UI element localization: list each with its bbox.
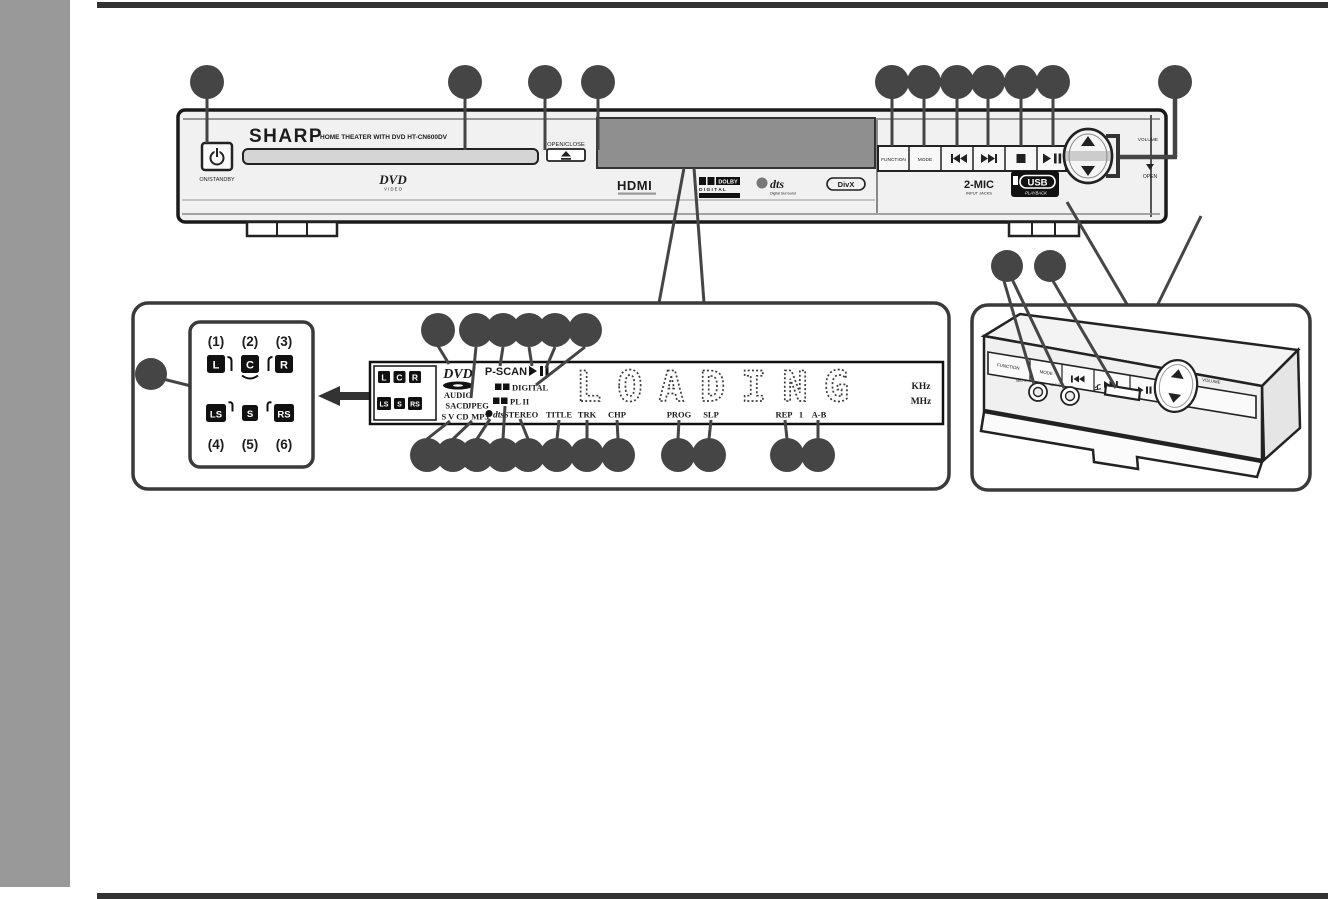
svg-text:S: S (397, 402, 402, 409)
open-close-label: OPEN/CLOSE (547, 142, 585, 148)
callout-dot (448, 65, 482, 99)
disc-tray (243, 149, 538, 164)
svg-text:dts: dts (770, 177, 784, 191)
svg-text:RS: RS (410, 402, 420, 409)
callout-dot (801, 438, 835, 472)
svg-text:DivX: DivX (838, 180, 855, 189)
transport-button-strip: FUNCTION MODE (878, 146, 1066, 171)
jpeg-indicator: JPEG (467, 401, 489, 411)
callout-dot (661, 438, 695, 472)
svg-text:Digital Surround: Digital Surround (770, 192, 796, 196)
svg-text:PLAYBACK: PLAYBACK (1025, 191, 1047, 196)
callout-dot (538, 313, 572, 347)
mic2-label: MIC 2 (1050, 383, 1060, 387)
callout-dot (528, 65, 562, 99)
dolby-double-d-icon (493, 398, 500, 405)
volume-label: VOLUME (1138, 137, 1158, 143)
mic1-jack (1029, 383, 1047, 401)
title-indicator: TITLE (546, 410, 572, 420)
stereo-indicator: STEREO (504, 410, 539, 420)
hdmi-logo: HDMI (617, 178, 656, 195)
page-bottom-rule (97, 893, 1328, 899)
callout-dot (601, 438, 635, 472)
channel-number: (6) (276, 437, 293, 452)
callout-dot (581, 65, 615, 99)
callout-dot (770, 438, 804, 472)
svg-text:DVD: DVD (378, 172, 407, 187)
callout-dot (570, 438, 604, 472)
divx-logo: DivX (827, 178, 865, 190)
khz-indicator: KHz (912, 382, 932, 392)
mic1-label: MIC 1 (1016, 379, 1026, 383)
chp-indicator: CHP (608, 410, 626, 420)
pscan-indicator: P-SCAN (485, 366, 527, 378)
function-button: FUNCTION (881, 157, 906, 163)
ab-repeat-indicator: A-B (812, 410, 827, 420)
callout-dot (135, 358, 167, 390)
callout-dot (190, 65, 224, 99)
volume-control (1064, 129, 1112, 183)
svg-text:PL II: PL II (510, 397, 530, 407)
callout-dot (1034, 250, 1066, 282)
svg-text:DVD: DVD (442, 367, 473, 382)
channel-number: (4) (208, 437, 225, 452)
svg-text:DIGITAL: DIGITAL (512, 383, 549, 393)
power-button (202, 143, 232, 170)
rep-indicator: REP (776, 410, 793, 420)
audio-indicator: AUDIO (444, 390, 473, 400)
callout-dot (940, 65, 974, 99)
display-window (597, 118, 875, 168)
svg-text:C: C (396, 373, 402, 383)
svg-text:LS: LS (380, 402, 389, 409)
manual-page: SHARP HOME THEATER WITH DVD HT-CN600DV O… (0, 0, 1328, 899)
svcd-indicator: S V CD (441, 412, 468, 422)
callout-dot (692, 438, 726, 472)
svg-text:DOLBY: DOLBY (718, 180, 738, 186)
channel-number: (5) (242, 437, 259, 452)
svg-text:V I D E O: V I D E O (384, 187, 402, 192)
loading-readout: LOADING (576, 362, 865, 411)
callout-dot (1158, 65, 1192, 99)
page-margin-bar (0, 0, 70, 887)
display-detail-box: (1) (2) (3) L C R LS (133, 303, 949, 489)
callout-dot (421, 313, 455, 347)
dts-globe-icon (757, 178, 768, 189)
svg-text:dts: dts (493, 411, 504, 421)
mic-sub-label: INPUT JACKS (966, 191, 992, 196)
callout-dot (1004, 65, 1038, 99)
display-panel: L C R LS S RS DVD AUDIO SACD S V CD JPEG (370, 362, 943, 424)
parts-diagram: SHARP HOME THEATER WITH DVD HT-CN600DV O… (0, 0, 1328, 899)
callout-dot (875, 65, 909, 99)
svg-text:L: L (213, 360, 220, 372)
open-close-button (547, 149, 585, 161)
rep-one-indicator: 1 (799, 410, 803, 420)
stop-icon (1017, 154, 1026, 163)
svg-text:RS: RS (277, 410, 290, 421)
mic-label: 2-MIC (964, 179, 994, 191)
callout-dot (568, 313, 602, 347)
mic2-jack (1061, 387, 1079, 405)
callout-dot (511, 438, 545, 472)
display-dvd-logo: DVD (442, 367, 473, 390)
sharp-logo: SHARP (249, 126, 323, 147)
mhz-indicator: MHz (911, 397, 932, 407)
svg-text:R: R (280, 360, 288, 372)
page-top-rule (97, 2, 1328, 8)
svg-text:HDMI: HDMI (617, 178, 652, 193)
callout-dot (971, 65, 1005, 99)
svg-text:L: L (381, 373, 386, 383)
trk-indicator: TRK (578, 410, 597, 420)
callout-dot (540, 438, 574, 472)
power-label: ON/STANDBY (199, 177, 235, 183)
slp-indicator: SLP (703, 410, 719, 420)
open-label: OPEN (1143, 174, 1158, 180)
callout-dot (991, 250, 1023, 282)
svg-text:D I G I T A L: D I G I T A L (699, 187, 726, 193)
callout-dot (907, 65, 941, 99)
mode-button: MODE (918, 157, 932, 163)
front-panel-illustration: SHARP HOME THEATER WITH DVD HT-CN600DV O… (178, 110, 1166, 236)
model-text: HOME THEATER WITH DVD HT-CN600DV (320, 134, 448, 141)
svg-text:R: R (412, 373, 418, 383)
unit-feet (247, 222, 1079, 236)
prog-indicator: PROG (667, 410, 692, 420)
callout-dot (1036, 65, 1070, 99)
usb-playback-logo: USB PLAYBACK (1011, 171, 1059, 197)
sacd-indicator: SACD (445, 401, 468, 411)
channel-number: (1) (208, 334, 225, 349)
channel-icon-S: S (242, 405, 258, 421)
side-view-box: FUNCTION MODE MIC 1 MIC 2 (972, 250, 1310, 490)
svg-text:S: S (247, 409, 253, 420)
dolby-double-d-icon (495, 384, 502, 391)
channel-number: (2) (242, 334, 259, 349)
svg-text:LS: LS (210, 410, 222, 421)
channel-number: (3) (276, 334, 293, 349)
svg-text:C: C (246, 360, 254, 372)
svg-text:USB: USB (1027, 177, 1047, 188)
